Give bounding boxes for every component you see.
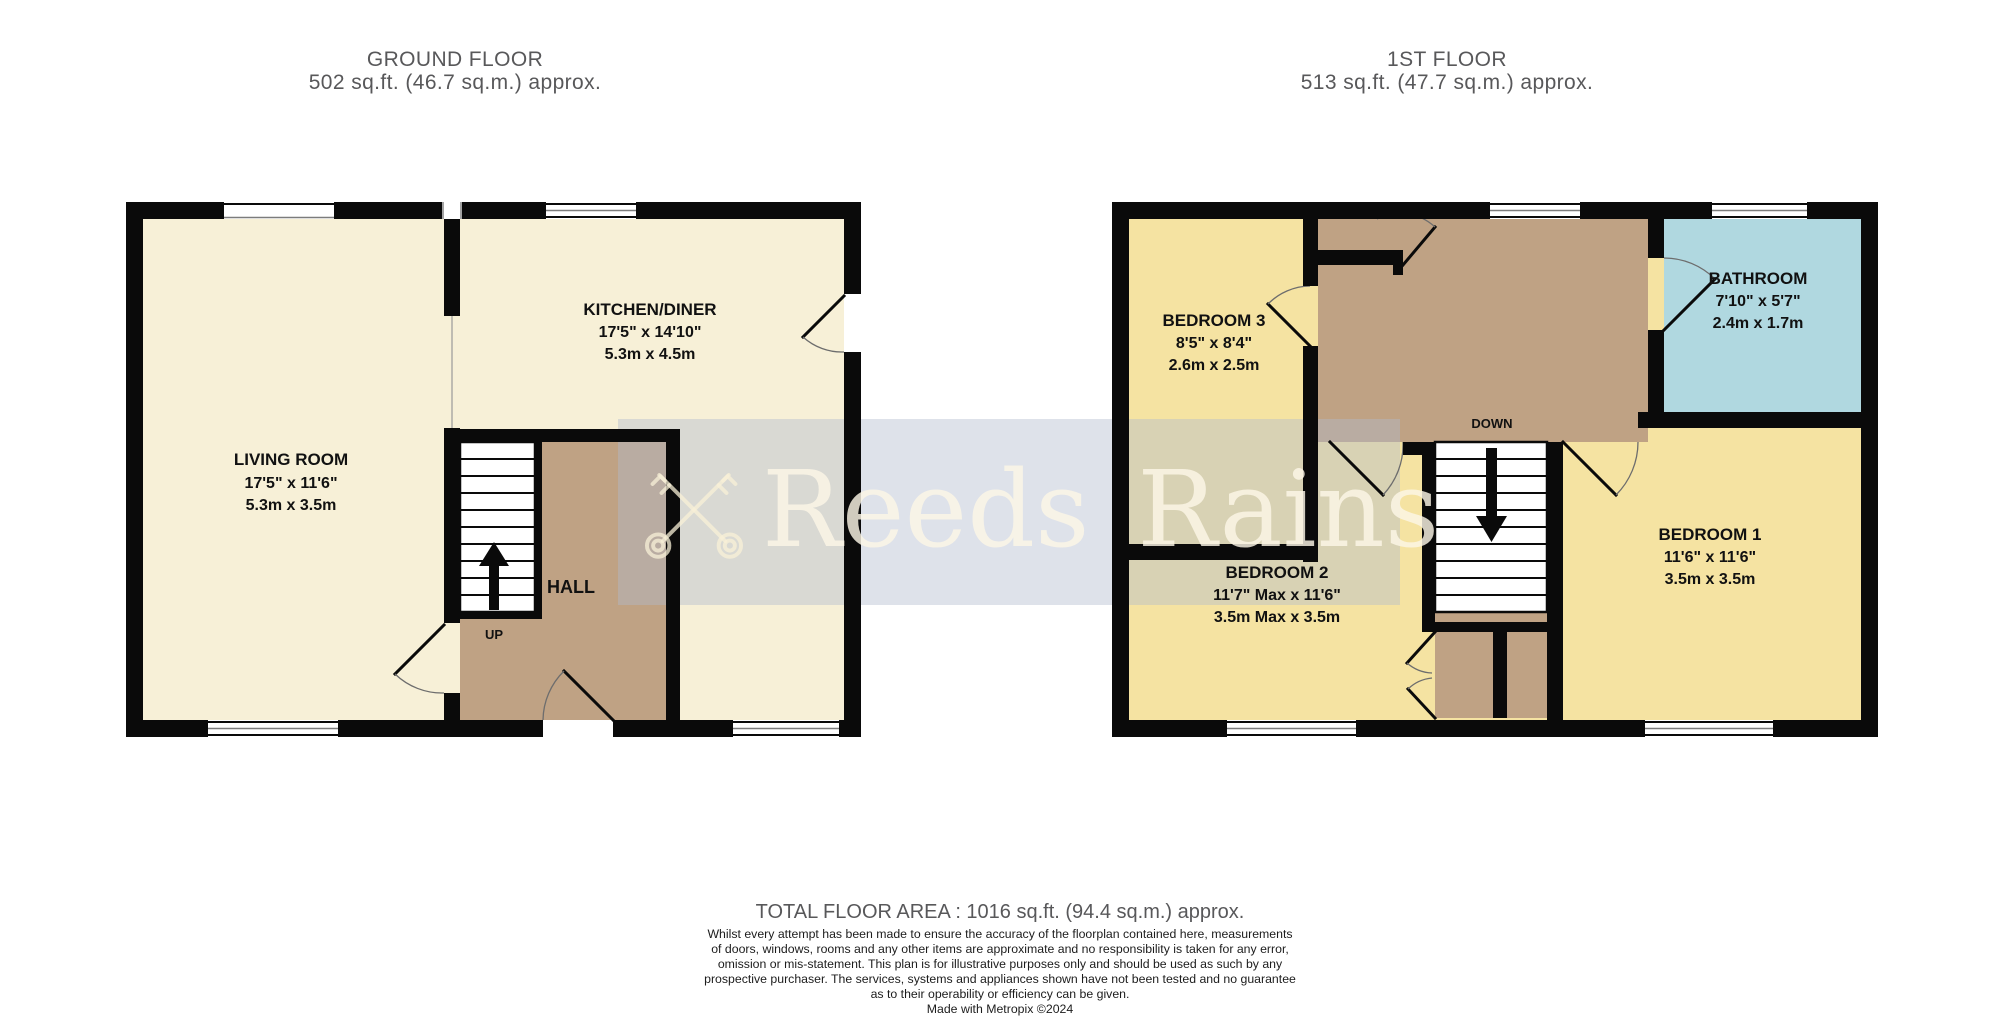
hall-label: HALL — [547, 577, 595, 597]
window — [208, 720, 338, 737]
cupboard-right-floor — [1507, 632, 1547, 718]
window — [442, 202, 462, 219]
living-room-size-imperial: 17'5" x 11'6" — [244, 475, 337, 492]
first-floor-area-line: 513 sq.ft. (47.7 sq.m.) approx. — [1237, 71, 1657, 94]
cupboard-left-floor — [1435, 632, 1493, 718]
bedroom2-size-metric: 3.5m Max x 3.5m — [1214, 609, 1340, 626]
disclaimer-line: as to their operability or efficiency ca… — [550, 987, 1450, 1002]
disclaimer-line: prospective purchaser. The services, sys… — [550, 972, 1450, 987]
disclaimer-line: Whilst every attempt has been made to en… — [550, 927, 1450, 942]
ground-floor-title: GROUND FLOOR 502 sq.ft. (46.7 sq.m.) app… — [245, 48, 665, 94]
window — [1227, 720, 1356, 737]
watermark-tint-ground — [618, 419, 861, 605]
kitchen-diner-label: KITCHEN/DINER — [583, 300, 716, 319]
bedroom1-size-metric: 3.5m x 3.5m — [1665, 571, 1756, 588]
bedroom1-size-imperial: 11'6" x 11'6" — [1664, 549, 1756, 566]
disclaimer-line: omission or mis-statement. This plan is … — [550, 957, 1450, 972]
living-room-size-metric: 5.3m x 3.5m — [246, 497, 337, 514]
bedroom1-label: BEDROOM 1 — [1659, 525, 1762, 544]
window — [224, 202, 334, 219]
staircase-down — [1435, 442, 1547, 612]
metropix-credit: Made with Metropix ©2024 — [550, 1002, 1450, 1017]
bedroom3-label: BEDROOM 3 — [1163, 311, 1266, 330]
ground-floor-plan: LIVING ROOM 17'5" x 11'6" 5.3m x 3.5m KI… — [126, 202, 861, 737]
up-label: UP — [485, 627, 503, 642]
ground-floor-area-line: 502 sq.ft. (46.7 sq.m.) approx. — [245, 71, 665, 94]
bedroom2-size-imperial: 11'7" Max x 11'6" — [1213, 587, 1341, 604]
kitchen-diner-size-metric: 5.3m x 4.5m — [605, 346, 696, 363]
window — [1712, 202, 1807, 219]
bathroom-size-imperial: 7'10" x 5'7" — [1715, 293, 1800, 310]
ground-floor-title-line: GROUND FLOOR — [245, 48, 665, 71]
bathroom-label: BATHROOM — [1709, 269, 1808, 288]
total-floor-area: TOTAL FLOOR AREA : 1016 sq.ft. (94.4 sq.… — [600, 901, 1400, 924]
window — [1645, 720, 1773, 737]
first-floor-plan: BEDROOM 3 8'5" x 8'4" 2.6m x 2.5m BATHRO… — [1112, 202, 1878, 737]
bedroom3-size-metric: 2.6m x 2.5m — [1169, 357, 1260, 374]
window — [733, 720, 839, 737]
kitchen-diner-size-imperial: 17'5" x 14'10" — [599, 324, 702, 341]
down-label: DOWN — [1471, 416, 1512, 431]
disclaimer-line: of doors, windows, rooms and any other i… — [550, 942, 1450, 957]
bedroom1-doorway-floor — [1563, 428, 1638, 442]
living-room-label: LIVING ROOM — [234, 450, 348, 469]
window — [1490, 202, 1580, 219]
first-floor-title: 1ST FLOOR 513 sq.ft. (47.7 sq.m.) approx… — [1237, 48, 1657, 94]
bedroom3-size-imperial: 8'5" x 8'4" — [1176, 335, 1252, 352]
first-floor-title-line: 1ST FLOOR — [1237, 48, 1657, 71]
stair-base-floor — [1435, 612, 1547, 622]
staircase-up — [460, 442, 542, 619]
floorplan-page: GROUND FLOOR 502 sq.ft. (46.7 sq.m.) app… — [0, 0, 2000, 1024]
bedroom2-label: BEDROOM 2 — [1226, 563, 1329, 582]
window — [546, 202, 636, 219]
disclaimer: Whilst every attempt has been made to en… — [550, 927, 1450, 1016]
bathroom-size-metric: 2.4m x 1.7m — [1713, 315, 1804, 332]
